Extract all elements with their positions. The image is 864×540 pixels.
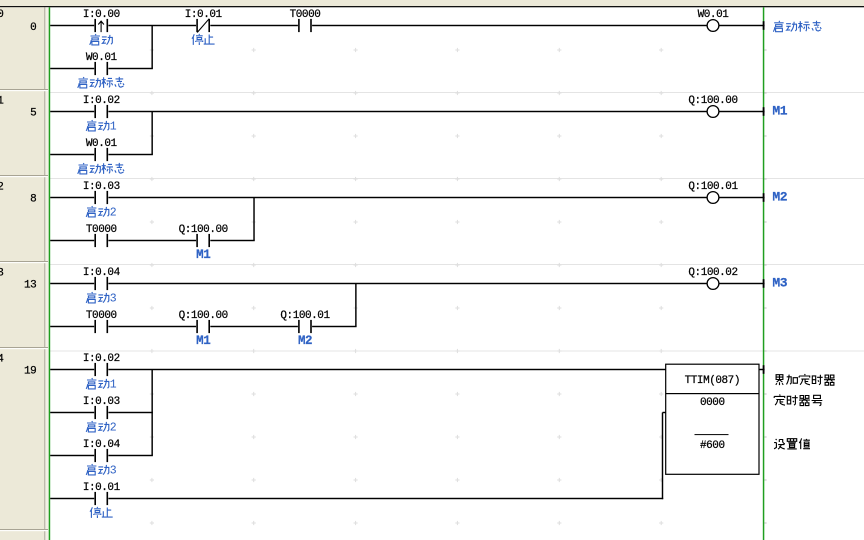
svg-text:T0000: T0000 [290,9,321,21]
svg-text:13: 13 [24,279,36,291]
svg-text:I:0.01: I:0.01 [185,9,223,21]
svg-text:#600: #600 [700,440,725,452]
svg-text:M1: M1 [196,248,210,262]
svg-text:I:0.04: I:0.04 [83,267,121,279]
svg-text:8: 8 [30,193,36,205]
svg-text:M3: M3 [772,276,787,291]
svg-text:I:0.02: I:0.02 [83,353,120,365]
svg-text:3: 3 [110,465,117,478]
svg-text:T0000: T0000 [86,310,117,322]
svg-text:M1: M1 [196,334,210,348]
svg-text:I:0.03: I:0.03 [83,181,120,193]
svg-text:TTIM(087): TTIM(087) [685,375,740,387]
svg-text:5: 5 [30,107,36,119]
svg-text:I:0.03: I:0.03 [83,396,120,408]
svg-text:0000: 0000 [700,397,725,409]
svg-text:19: 19 [24,365,36,377]
svg-text:M1: M1 [772,104,787,119]
svg-text:3: 3 [110,293,117,306]
svg-text:Q:100.02: Q:100.02 [688,267,737,279]
svg-text:M2: M2 [772,190,787,205]
svg-text:0: 0 [30,22,36,34]
svg-text:3: 3 [0,267,3,279]
svg-text:Q:100.01: Q:100.01 [280,310,330,322]
svg-text:Q:100.00: Q:100.00 [179,224,228,236]
svg-text:2: 2 [110,207,117,220]
svg-text:0: 0 [0,9,3,21]
svg-text:M2: M2 [298,334,312,348]
svg-text:Q:100.00: Q:100.00 [688,95,737,107]
svg-text:I:0.00: I:0.00 [83,9,120,21]
svg-text:Q:100.01: Q:100.01 [688,181,738,193]
svg-text:Q:100.00: Q:100.00 [179,310,228,322]
svg-text:I:0.04: I:0.04 [83,439,121,451]
svg-text:W0.01: W0.01 [86,52,118,64]
svg-text:1: 1 [110,379,117,392]
svg-text:W0.01: W0.01 [86,138,118,150]
svg-text:I:0.02: I:0.02 [83,95,120,107]
svg-text:2: 2 [110,422,117,435]
svg-text:1: 1 [110,121,117,134]
svg-text:I:0.01: I:0.01 [83,482,121,494]
svg-text:2: 2 [0,181,3,193]
svg-text:W0.01: W0.01 [698,9,730,21]
svg-text:T0000: T0000 [86,224,117,236]
